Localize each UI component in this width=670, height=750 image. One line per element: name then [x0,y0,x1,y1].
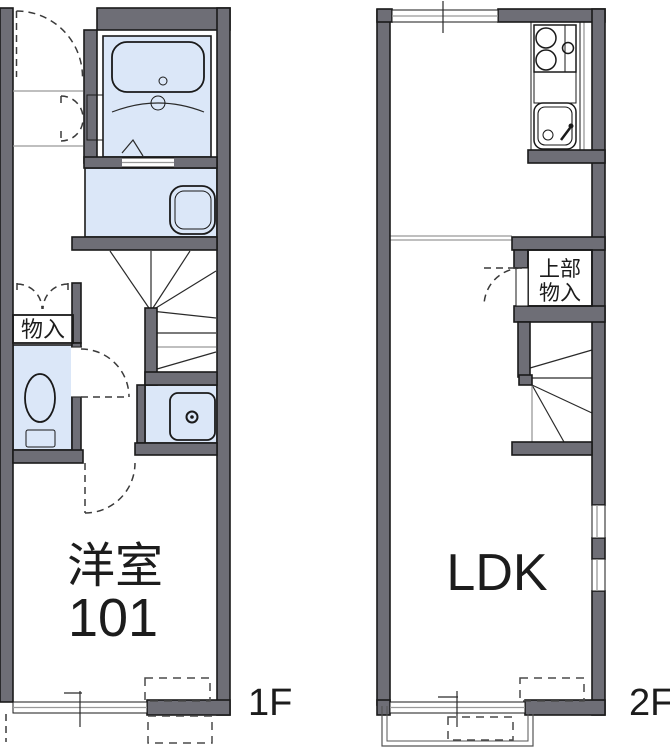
wall-1f-left [0,8,13,702]
toilet-door-gap [71,347,82,397]
wall-1f-top [97,8,230,30]
floor-plan-canvas: 物入 洋室 101 1F [0,0,670,750]
wall-stairs2f-left [518,322,530,377]
plan-1f: 物入 洋室 101 1F [0,8,292,743]
window-2f-top [392,1,498,33]
wall-2f-mid [512,237,605,250]
wall-2f-right-mid [592,538,605,559]
storage-door-arc-right [43,284,68,309]
wall-corridor-left [13,450,83,463]
staircase-1f [110,251,216,369]
floor-label-1f: 1F [248,682,292,724]
upper-storage-door [516,268,528,306]
shoe-closet-door-arc-bottom [61,119,83,141]
ldk-dashed-area [520,678,584,701]
wall-2f-right-upper [592,9,605,505]
wall-washroom-bottom [72,237,217,250]
room101-door-arc [85,463,135,513]
toilet-door-arc [81,349,129,397]
floor-label-2f: 2F [629,682,670,724]
wall-closet-bottom [514,306,605,322]
storage-label: 物入 [21,317,65,342]
floor-plan-page: 物入 洋室 101 1F [0,0,670,750]
upper-storage-closet: 上部 物入 [484,250,592,306]
toilet-door [71,347,129,397]
window-2f-bottom [390,691,525,727]
wall-2f-top-right [498,9,605,22]
washroom-floor [85,168,217,237]
wall-stairs2f-post [519,375,532,385]
window-1f-bottom [13,691,147,727]
room-101-number: 101 [68,588,158,648]
room-101-label: 洋室 [67,540,163,593]
entrance-door [13,11,83,146]
wall-bath-left [84,30,97,163]
toilet-room-floor [13,345,72,450]
wall-2f-top-left [377,9,392,22]
plan-2f: 上部 物入 LDK 2F [377,1,670,746]
window-2f-right-1 [592,505,605,538]
wall-stair-bottom [145,372,217,385]
room101-dashed-area [145,678,210,701]
wall-laundry-left [137,385,145,443]
wall-2f-bottom-left-corner [377,700,390,715]
ldk-label: LDK [446,544,547,602]
storage-door-arc-left [17,284,42,309]
room101-door [85,463,135,513]
upper-storage-label-2: 物入 [539,282,581,305]
wall-1f-right [217,8,230,715]
entrance-door-arc [17,11,83,77]
wall-2f-right-lower [592,591,605,715]
kitchen [531,22,592,152]
kitchen-side-window [580,22,592,152]
wall-corridor-right [135,443,217,455]
shoe-closet-door-arc-top [61,96,83,118]
wall-closet-post [514,250,528,268]
wall-kitchen-bottom [528,150,605,163]
window-2f-right-2 [592,559,605,591]
porch-dashed-area [148,716,212,743]
wall-2f-left [377,10,390,705]
storage-closet-1f: 物入 [13,283,73,343]
staircase-2f [530,350,592,442]
balcony-dashed-area [448,717,513,740]
upper-storage-label-1: 上部 [539,258,581,281]
wall-2f-bottom [525,700,605,715]
wall-stairs2f-bottom [512,442,592,455]
wall-1f-bottom [147,700,230,715]
laundry-drain-dot [190,415,194,419]
